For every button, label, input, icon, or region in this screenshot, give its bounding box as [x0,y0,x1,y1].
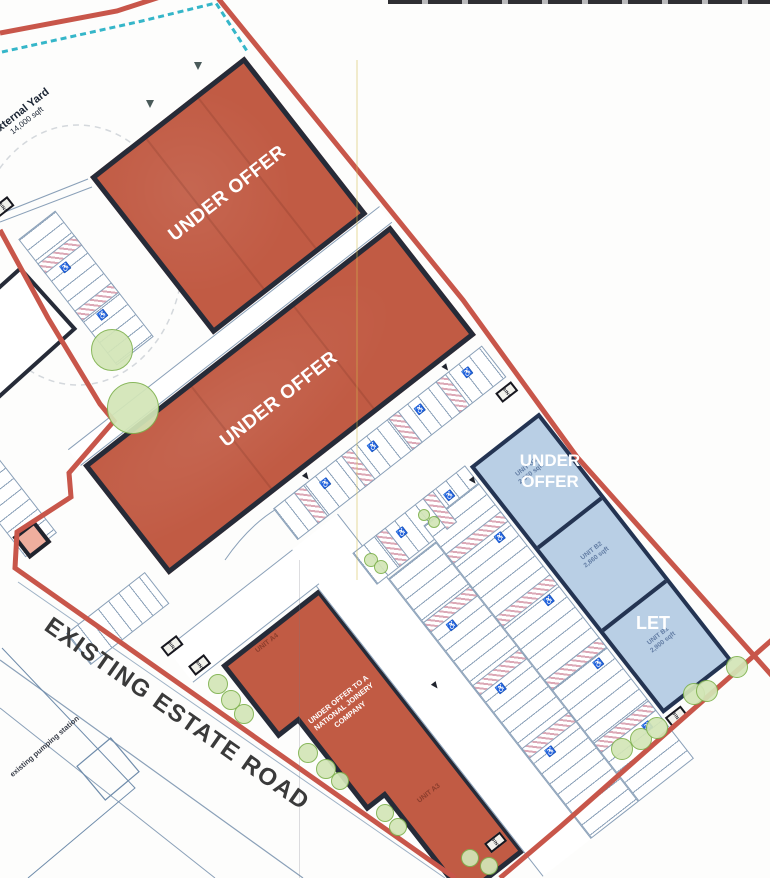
yard-bottom-line [0,179,88,214]
bins-label: BINS [194,659,205,671]
tree [726,656,748,678]
tree [646,717,668,739]
yard-boundary-dashed [2,3,247,52]
site-boundary-topleft [0,0,160,33]
tree [331,772,349,790]
tree [234,704,254,724]
bins-box: BINS [495,381,518,403]
tree [374,560,388,574]
scan-fold-line [299,560,300,878]
yard-tick-mark [194,62,202,70]
tree [298,743,318,763]
scan-line-yellow [356,60,358,580]
bins-label: BINS [490,836,501,848]
scan-artifact-top-edge [388,0,770,4]
bins-label: BINS [501,386,512,398]
tree [428,516,440,528]
tree [480,857,498,875]
bins-label: BINS [671,710,682,722]
b1-status-overlay: LET [618,612,688,635]
b3-status-overlay: UNDER OFFER [498,450,602,493]
tree [696,680,718,702]
bins-box: BINS [0,196,15,218]
site-plan-scan: External Yard 14,000 sqft UNDER OFFER UN… [0,0,770,878]
pumping-station-label: existing pumping station [8,714,81,779]
tree [389,818,407,836]
bins-label: BINS [0,201,9,213]
tree [91,329,133,371]
tree [107,382,159,434]
b3-status-text: UNDER OFFER [498,450,602,493]
pumping-station-building [77,738,139,800]
external-yard-label: External Yard 14,000 sqft [0,70,77,160]
yard-tick-mark [146,100,154,108]
bins-label: BINS [166,640,177,652]
tree [461,849,479,867]
